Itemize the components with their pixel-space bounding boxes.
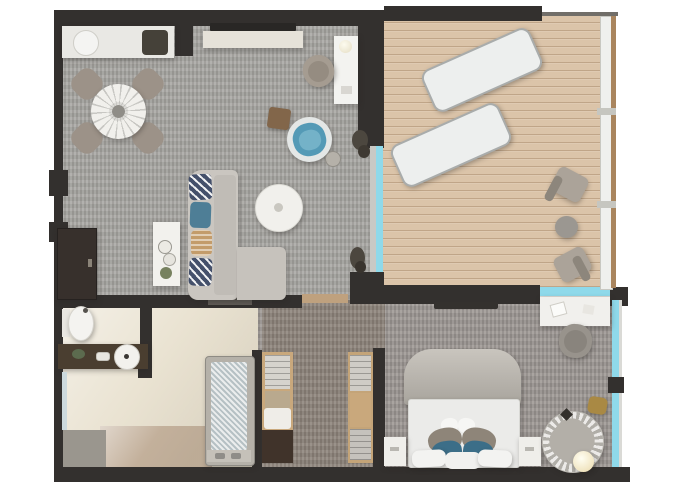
nightstand-right bbox=[519, 437, 541, 466]
console-plate-a bbox=[158, 240, 172, 254]
bed-headboard-canopy bbox=[404, 349, 521, 405]
gold-side-table bbox=[587, 395, 609, 415]
coffee-table-hub bbox=[274, 203, 283, 212]
wall-wc-divider bbox=[140, 300, 152, 350]
desk-paper-b bbox=[582, 304, 594, 315]
tv-bedroom bbox=[434, 302, 498, 309]
vanity-soap-tray bbox=[96, 352, 110, 361]
sofa-chaise bbox=[237, 247, 286, 300]
toilet-button bbox=[83, 308, 88, 313]
nightstand-left bbox=[384, 437, 406, 466]
sofa-pillow-gold bbox=[191, 230, 212, 256]
plant-a-leaf bbox=[358, 145, 370, 158]
desk-lamp-living bbox=[339, 40, 352, 53]
wardrobe-bedroom-shelves-bottom bbox=[350, 429, 371, 460]
wall-left-pier-a bbox=[49, 170, 68, 196]
console-plant bbox=[160, 267, 172, 279]
bed-pillow-white-c bbox=[478, 449, 513, 468]
floor-lamp-living bbox=[325, 151, 341, 167]
bathtub-faucet-b bbox=[231, 453, 241, 459]
side-table-wood bbox=[267, 107, 292, 131]
kitchenette-sink bbox=[73, 30, 99, 56]
vanity-plant bbox=[72, 349, 85, 359]
door-glass-living-terrace bbox=[376, 146, 383, 272]
tv-console bbox=[203, 31, 303, 48]
kitchenette-appliance bbox=[142, 30, 168, 55]
rail-post-b bbox=[597, 201, 616, 208]
entry-closet-handle bbox=[88, 259, 92, 267]
bathtub-deck bbox=[207, 450, 251, 462]
floor-shower-tray bbox=[56, 430, 106, 467]
wall-kitchen-pier bbox=[175, 10, 193, 56]
floorplan-canvas bbox=[0, 0, 680, 487]
rail-terrace-right-wood bbox=[611, 16, 616, 288]
toilet-bowl bbox=[68, 306, 94, 341]
wall-terrace-divider-bottom bbox=[350, 272, 384, 304]
bathtub-water bbox=[211, 362, 247, 450]
dining-table-hub bbox=[112, 105, 125, 118]
wall-top-terrace bbox=[384, 6, 542, 21]
console-plate-b bbox=[163, 253, 176, 266]
sofa-pillow-teal bbox=[190, 202, 212, 229]
plant-b-leaf bbox=[355, 261, 366, 273]
wardrobe-bath-shelves bbox=[265, 355, 290, 389]
threshold-bedroom-door bbox=[302, 294, 348, 303]
wardrobe-bedroom-shelves-top bbox=[350, 355, 371, 391]
wardrobe-bath-base bbox=[262, 430, 293, 463]
terrace-table bbox=[555, 216, 578, 238]
wardrobe-bath-items bbox=[264, 408, 291, 429]
ball-lamp bbox=[573, 451, 594, 472]
shower-glass-panel bbox=[62, 372, 67, 430]
wall-bottom bbox=[54, 467, 630, 482]
bed-pillow-white-a bbox=[412, 449, 447, 468]
bathtub-faucet-a bbox=[215, 453, 225, 459]
sofa-pillow-zigzag-b bbox=[188, 257, 212, 286]
bed-pillow-white-b bbox=[445, 452, 481, 469]
nightstand-right-handle bbox=[525, 447, 534, 451]
floor-bathroom-wet-zone bbox=[100, 426, 212, 467]
sofa-pillow-zigzag-a bbox=[188, 173, 212, 200]
vanity-sink-drain bbox=[124, 354, 129, 359]
rail-post-a bbox=[597, 108, 616, 115]
nightstand-left-handle bbox=[390, 447, 399, 451]
desk-chair-bedroom-seat bbox=[564, 330, 587, 353]
desk-item-living bbox=[341, 86, 352, 94]
wall-window-mullion bbox=[608, 377, 624, 393]
wardrobe-bath-mid bbox=[265, 391, 290, 408]
tv-living bbox=[210, 23, 296, 31]
sofa-seat-edge bbox=[214, 175, 236, 295]
wardrobe-bedroom-hanging bbox=[350, 393, 371, 427]
